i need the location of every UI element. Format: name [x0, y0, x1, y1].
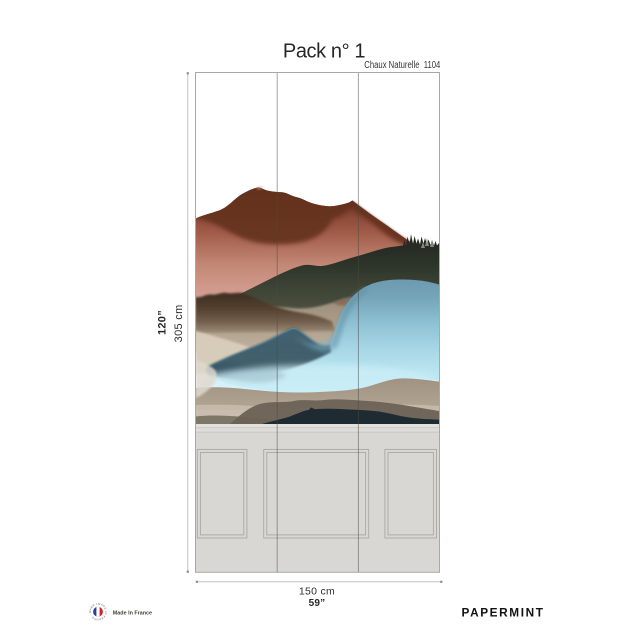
svg-text:PAPERMINT: PAPERMINT — [462, 606, 545, 620]
svg-text:Pack n° 1: Pack n° 1 — [283, 41, 365, 63]
svg-text:Chaux Naturelle 1104: Chaux Naturelle 1104 — [364, 60, 440, 71]
svg-text:305 cm: 305 cm — [173, 304, 185, 342]
svg-text:120”: 120” — [157, 310, 169, 335]
svg-text:Made In France: Made In France — [113, 610, 152, 616]
svg-text:59”: 59” — [309, 598, 326, 609]
svg-text:150 cm: 150 cm — [299, 586, 335, 598]
